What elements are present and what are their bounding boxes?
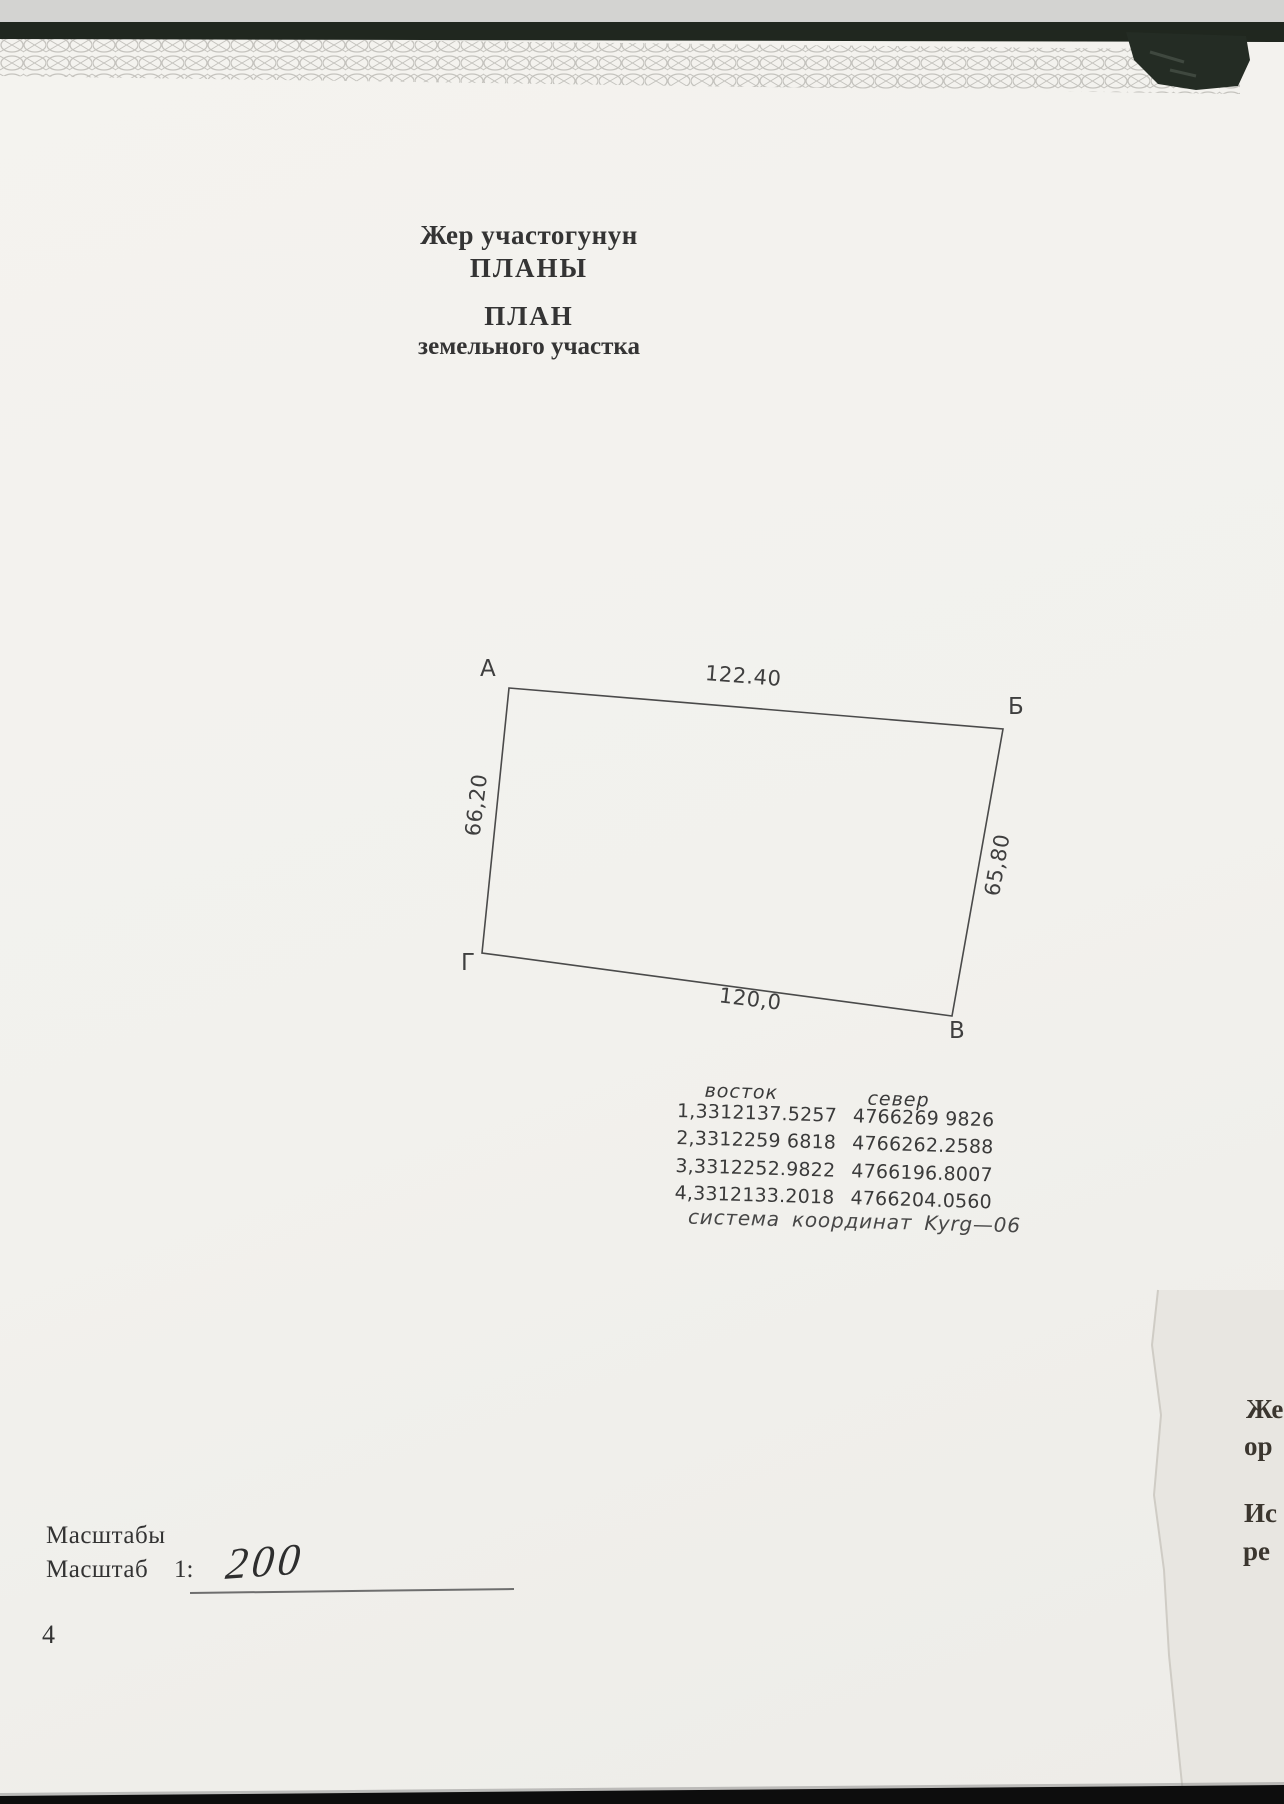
top-dark-band bbox=[0, 22, 1284, 42]
corner-label-b: Б bbox=[1008, 694, 1024, 720]
corner-label-v: В bbox=[949, 1018, 965, 1044]
corner-label-g: Г bbox=[461, 950, 475, 976]
title-line-plan: ПЛАН bbox=[290, 300, 768, 332]
parcel-outline bbox=[482, 688, 1003, 1016]
adjacent-text-fragment-3: Ис bbox=[1244, 1498, 1277, 1529]
corner-label-a: А bbox=[480, 656, 496, 682]
title-line-plany: ПЛАНЫ bbox=[290, 252, 768, 284]
top-scan-strip bbox=[0, 0, 1284, 22]
guilloche-border-pattern bbox=[0, 36, 1240, 94]
north-value: 4766196.8007 bbox=[851, 1160, 993, 1186]
scale-value-handwritten: 200 bbox=[223, 1533, 306, 1590]
document-title-block: Жер участогунун ПЛАНЫ ПЛАН земельного уч… bbox=[290, 218, 768, 362]
adjacent-text-fragment-1: Же bbox=[1246, 1394, 1283, 1425]
adjacent-text-fragment-2: ор bbox=[1244, 1431, 1273, 1462]
north-value: 4766262.2588 bbox=[852, 1132, 994, 1158]
scanned-document: Жер участогунун ПЛАНЫ ПЛАН земельного уч… bbox=[0, 0, 1284, 1804]
scale-label: Масштаб bbox=[46, 1556, 148, 1584]
title-line-subject: земельного участка bbox=[290, 332, 768, 362]
north-value: 4766269 9826 bbox=[853, 1105, 995, 1131]
scales-heading: Масштабы bbox=[46, 1522, 166, 1550]
title-gap bbox=[290, 284, 768, 300]
page-number: 4 bbox=[42, 1620, 55, 1650]
scale-ratio-prefix: 1: bbox=[174, 1556, 193, 1584]
adjacent-text-fragment-4: ре bbox=[1243, 1536, 1270, 1567]
title-line-kyrgyz: Жер участогунун bbox=[290, 218, 768, 252]
